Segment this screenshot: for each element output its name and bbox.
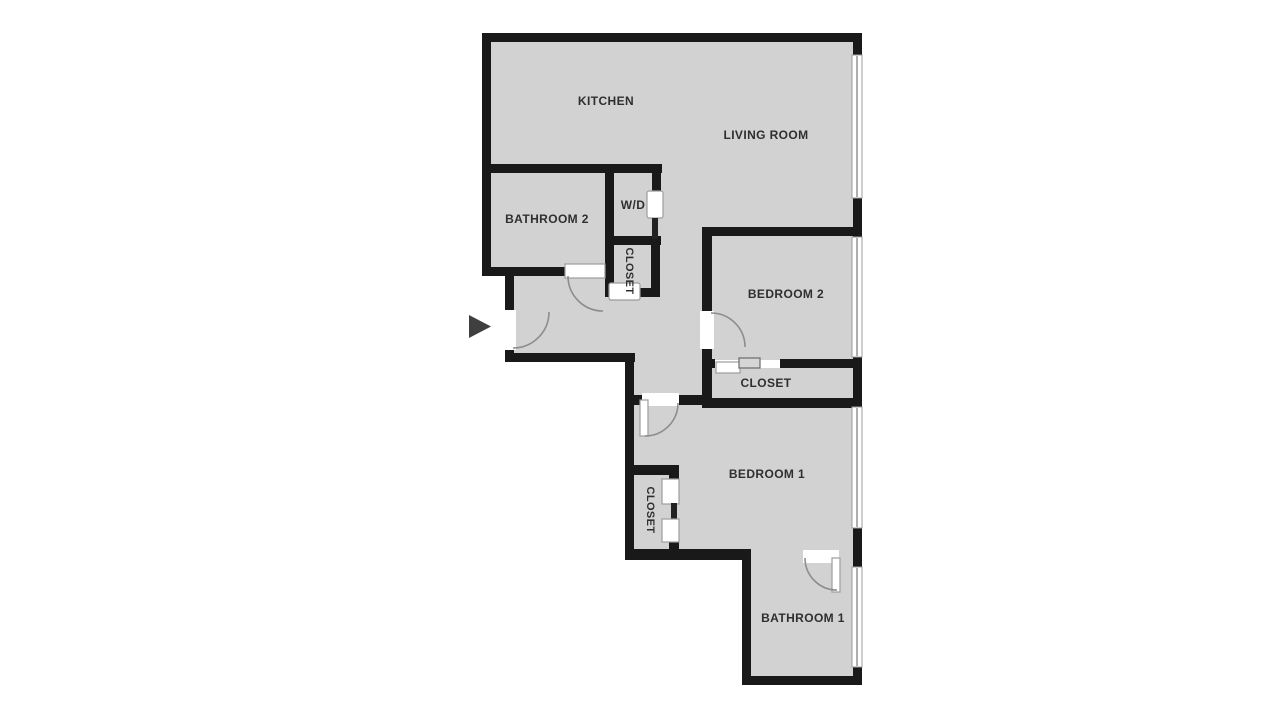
wall-bedroom1-top-right	[678, 395, 711, 405]
room-label-bedroom-1-closet: CLOSET	[644, 486, 656, 533]
wall-wd-right	[652, 164, 661, 195]
room-label-bedroom-1: BEDROOM 1	[729, 467, 805, 481]
bedroom2closet-panel-back	[739, 358, 760, 368]
entry-arrow-icon	[469, 315, 491, 338]
wall-bathroom2-right	[605, 164, 614, 297]
room-label-living-room: LIVING ROOM	[723, 128, 808, 142]
wall-kitchen-divider	[482, 164, 662, 173]
bedroom1closet-panel-bottom	[662, 519, 679, 542]
wall-bedroom2closet-top-left	[702, 359, 715, 368]
wall-bathroom1-left	[742, 553, 751, 685]
bedroom1closet-panel-mid	[671, 503, 677, 521]
wall-bedroom1-bottom	[625, 549, 751, 560]
bedroom2closet-panel-front	[716, 362, 740, 373]
room-label-wd: W/D	[621, 198, 646, 212]
bedroom1closet-panel-top	[662, 479, 679, 504]
wall-hall-left-upper	[505, 275, 514, 312]
wall-bedroom2-top	[702, 227, 862, 236]
room-label-bedroom-2-closet: CLOSET	[740, 376, 791, 390]
bedroom2-door-opening	[700, 311, 714, 349]
wall-bedroom2closet-top-right	[780, 359, 862, 368]
room-label-bathroom-2: BATHROOM 2	[505, 212, 589, 226]
floorplan-drawing	[0, 0, 1280, 720]
bedroom1-door-leaf	[640, 400, 648, 436]
wd-door-panel	[647, 191, 663, 218]
room-label-bathroom-1: BATHROOM 1	[761, 611, 845, 625]
wall-bedroom2-left-upper	[702, 227, 712, 313]
room-label-hall-closet: CLOSET	[623, 247, 635, 294]
bathroom2-door-panel	[565, 264, 605, 278]
wall-left-lower	[625, 353, 634, 560]
wd-door-track	[652, 218, 658, 239]
entry-door-opening	[503, 310, 516, 350]
wall-bathroom1-bottom	[742, 676, 862, 685]
floorplan-canvas: KITCHEN LIVING ROOM BATHROOM 2 W/D CLOSE…	[0, 0, 1280, 720]
room-label-kitchen: KITCHEN	[578, 94, 634, 108]
wall-left-upper	[482, 33, 491, 276]
wall-bedroom2closet-bottom	[702, 398, 862, 408]
room-label-bedroom-2: BEDROOM 2	[748, 287, 824, 301]
wall-top	[482, 33, 862, 42]
bathroom1-door-leaf	[832, 558, 840, 592]
wall-hall-bottom	[505, 353, 635, 362]
